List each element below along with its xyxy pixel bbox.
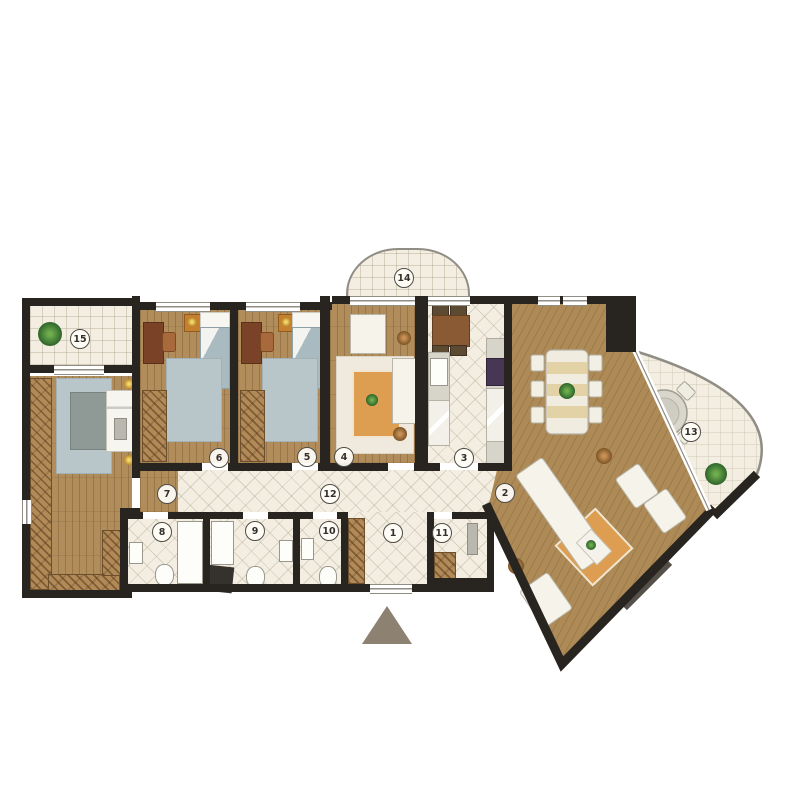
wall <box>504 296 512 470</box>
plant-icon <box>705 463 727 485</box>
entrance-arrow-icon <box>362 606 412 644</box>
wall <box>22 298 30 500</box>
wall <box>452 512 494 519</box>
wall <box>120 512 143 519</box>
wall <box>318 463 388 471</box>
lamp-icon <box>282 318 291 327</box>
room-label-11: 11 <box>432 523 452 543</box>
room-label-14: 14 <box>394 268 414 288</box>
room-label-9: 9 <box>245 521 265 541</box>
wall-corner-block <box>606 296 636 352</box>
wall <box>293 512 300 592</box>
room-label-4: 4 <box>334 447 354 467</box>
plant-icon <box>38 322 62 346</box>
balcony-door-window <box>350 296 415 306</box>
wall <box>120 512 128 592</box>
room-label-1: 1 <box>383 523 403 543</box>
pouf <box>596 448 612 464</box>
wall <box>22 524 30 598</box>
lamp-icon <box>188 318 197 327</box>
room-label-10: 10 <box>319 521 339 541</box>
wall <box>22 590 132 598</box>
window <box>563 296 587 306</box>
wall <box>320 296 330 470</box>
living-wing-drawing <box>0 0 800 800</box>
wall <box>203 512 210 592</box>
wall <box>168 512 243 519</box>
room-label-13: 13 <box>681 422 701 442</box>
wall <box>120 584 370 592</box>
living-room-2 <box>488 296 711 664</box>
wall <box>140 463 202 471</box>
wall <box>140 302 156 310</box>
entrance-door <box>370 584 412 594</box>
window <box>22 500 32 524</box>
wall <box>230 302 238 470</box>
floor-plan: 1 2 3 4 5 6 7 8 9 10 11 12 13 14 15 <box>0 0 800 800</box>
wall <box>22 298 140 306</box>
room-label-7: 7 <box>157 484 177 504</box>
wall <box>341 512 348 592</box>
plant-icon <box>586 540 596 550</box>
dining-table <box>531 350 602 434</box>
wall <box>26 365 54 373</box>
room-label-2: 2 <box>495 483 515 503</box>
wall <box>332 296 350 304</box>
pouf <box>393 427 407 441</box>
wall <box>228 463 292 471</box>
window <box>246 302 300 312</box>
room-label-6: 6 <box>209 448 229 468</box>
wall <box>415 296 428 470</box>
room-label-15: 15 <box>70 329 90 349</box>
wall <box>337 512 347 519</box>
wall <box>478 463 512 471</box>
wall <box>132 296 140 376</box>
wall <box>487 512 494 586</box>
wall <box>132 376 140 478</box>
window <box>54 365 104 375</box>
window <box>538 296 560 306</box>
plant-icon <box>559 383 575 399</box>
wall <box>104 365 132 373</box>
wall <box>268 512 313 519</box>
wall <box>414 463 440 471</box>
room-label-3: 3 <box>454 448 474 468</box>
wall <box>210 302 246 310</box>
pouf <box>397 331 411 345</box>
window <box>156 302 210 312</box>
plant-icon <box>366 394 378 406</box>
room-label-12: 12 <box>320 484 340 504</box>
room-label-8: 8 <box>152 522 172 542</box>
wall <box>427 578 494 586</box>
window <box>428 296 470 306</box>
room-label-5: 5 <box>297 447 317 467</box>
